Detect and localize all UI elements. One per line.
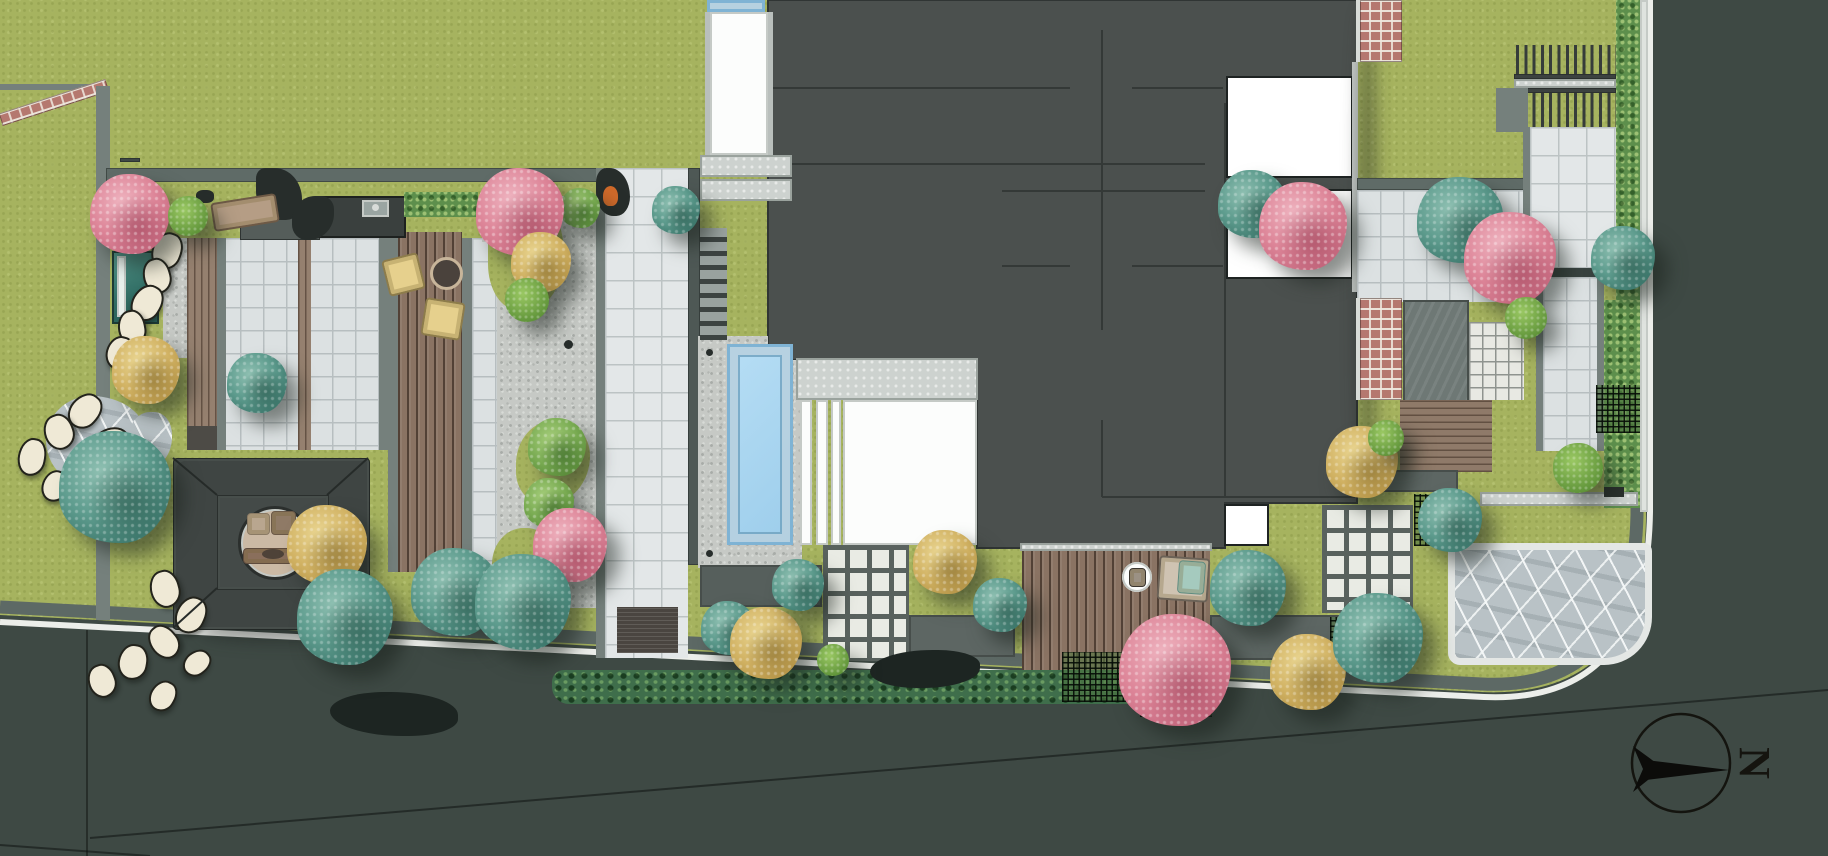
compass-layer: N <box>0 0 1828 856</box>
north-label: N <box>1730 747 1779 779</box>
north-arrow-needle <box>1646 760 1729 780</box>
site-plan-canvas: N <box>0 0 1828 856</box>
